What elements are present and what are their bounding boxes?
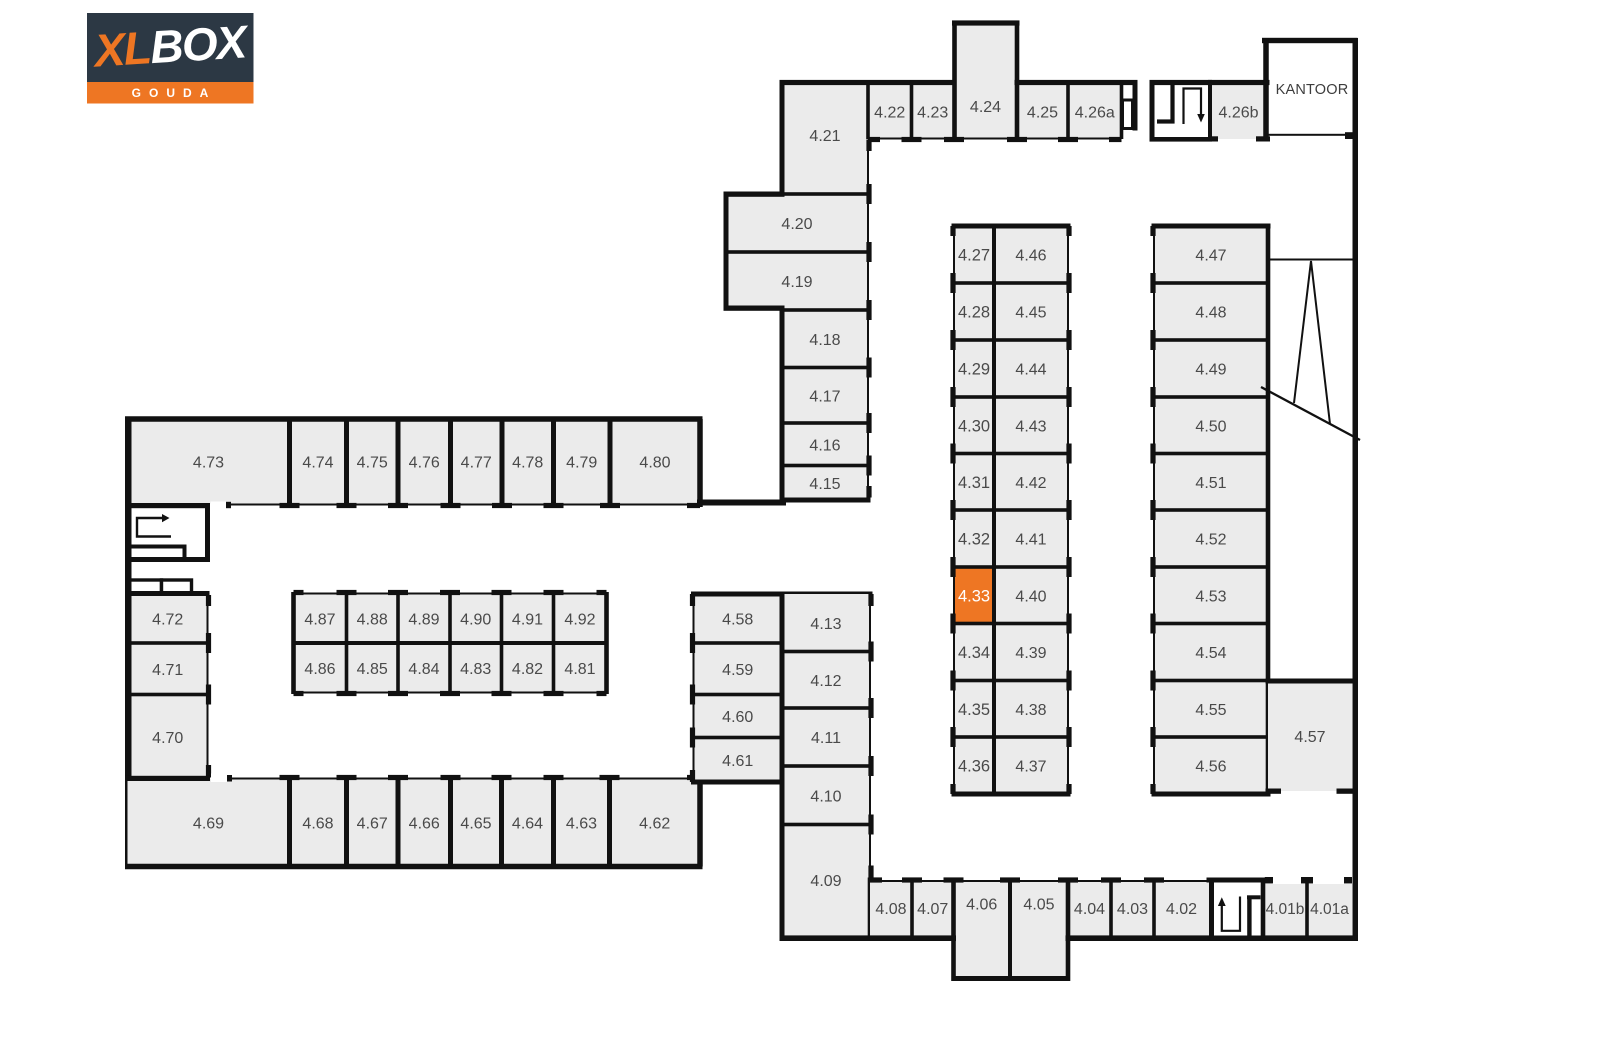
svg-text:4.23: 4.23 — [917, 105, 948, 122]
svg-text:4.24: 4.24 — [970, 99, 1001, 116]
svg-text:4.53: 4.53 — [1195, 588, 1226, 605]
svg-text:4.32: 4.32 — [958, 531, 990, 549]
svg-text:4.20: 4.20 — [781, 216, 812, 233]
svg-text:4.74: 4.74 — [302, 454, 333, 471]
svg-text:4.41: 4.41 — [1015, 532, 1046, 549]
svg-text:4.86: 4.86 — [304, 661, 335, 678]
svg-text:4.25: 4.25 — [1027, 105, 1058, 122]
svg-text:4.59: 4.59 — [722, 662, 753, 679]
svg-text:4.58: 4.58 — [722, 612, 753, 629]
svg-text:4.43: 4.43 — [1015, 418, 1046, 435]
svg-text:4.06: 4.06 — [966, 896, 997, 913]
svg-text:4.05: 4.05 — [1023, 896, 1054, 913]
svg-text:4.54: 4.54 — [1195, 645, 1226, 662]
svg-text:4.77: 4.77 — [461, 454, 492, 471]
svg-text:4.28: 4.28 — [958, 304, 990, 322]
svg-text:4.83: 4.83 — [460, 661, 491, 678]
svg-text:4.39: 4.39 — [1015, 645, 1046, 662]
svg-text:XLBOX: XLBOX — [90, 15, 251, 77]
svg-text:4.76: 4.76 — [409, 454, 440, 471]
svg-text:4.10: 4.10 — [810, 788, 841, 805]
svg-text:4.21: 4.21 — [809, 128, 840, 145]
svg-text:4.82: 4.82 — [512, 661, 543, 678]
svg-text:4.79: 4.79 — [566, 454, 597, 471]
svg-text:4.89: 4.89 — [408, 611, 439, 628]
svg-text:4.02: 4.02 — [1166, 901, 1197, 918]
svg-text:4.17: 4.17 — [809, 388, 840, 405]
svg-text:4.35: 4.35 — [958, 701, 990, 719]
svg-text:4.66: 4.66 — [409, 816, 440, 833]
svg-text:4.67: 4.67 — [357, 816, 388, 833]
svg-text:4.84: 4.84 — [408, 661, 439, 678]
svg-text:4.55: 4.55 — [1195, 702, 1226, 719]
svg-text:4.81: 4.81 — [564, 661, 595, 678]
svg-text:4.71: 4.71 — [152, 662, 183, 679]
svg-text:4.78: 4.78 — [512, 454, 543, 471]
svg-text:4.47: 4.47 — [1195, 248, 1226, 265]
svg-text:4.52: 4.52 — [1195, 532, 1226, 549]
svg-text:KANTOOR: KANTOOR — [1276, 82, 1349, 98]
svg-text:4.37: 4.37 — [1015, 759, 1046, 776]
svg-text:4.51: 4.51 — [1195, 475, 1226, 492]
svg-text:4.34: 4.34 — [958, 644, 990, 662]
svg-text:4.61: 4.61 — [722, 753, 753, 770]
svg-text:4.16: 4.16 — [809, 437, 840, 454]
svg-text:4.75: 4.75 — [357, 454, 388, 471]
svg-text:4.13: 4.13 — [810, 616, 841, 633]
svg-text:4.38: 4.38 — [1015, 702, 1046, 719]
svg-text:4.57: 4.57 — [1294, 729, 1325, 746]
svg-text:4.36: 4.36 — [958, 758, 990, 776]
svg-text:4.44: 4.44 — [1015, 362, 1046, 379]
svg-text:4.18: 4.18 — [809, 332, 840, 349]
svg-text:4.91: 4.91 — [512, 611, 543, 628]
svg-text:4.56: 4.56 — [1195, 759, 1226, 776]
svg-text:4.09: 4.09 — [810, 873, 841, 890]
svg-text:4.68: 4.68 — [302, 816, 333, 833]
svg-text:4.70: 4.70 — [152, 730, 183, 747]
svg-text:4.48: 4.48 — [1195, 305, 1226, 322]
svg-text:4.73: 4.73 — [193, 454, 224, 471]
svg-text:4.69: 4.69 — [193, 816, 224, 833]
svg-text:4.30: 4.30 — [958, 417, 990, 435]
svg-text:4.03: 4.03 — [1117, 901, 1148, 918]
svg-text:4.88: 4.88 — [357, 611, 388, 628]
svg-text:4.90: 4.90 — [460, 611, 491, 628]
svg-text:4.11: 4.11 — [811, 730, 841, 747]
svg-text:4.65: 4.65 — [460, 816, 491, 833]
svg-text:4.12: 4.12 — [810, 673, 841, 690]
svg-text:4.26a: 4.26a — [1075, 105, 1115, 122]
svg-text:4.22: 4.22 — [874, 105, 905, 122]
svg-text:4.29: 4.29 — [958, 361, 990, 379]
svg-text:4.85: 4.85 — [357, 661, 388, 678]
svg-text:4.50: 4.50 — [1195, 418, 1226, 435]
svg-text:4.31: 4.31 — [958, 474, 990, 492]
svg-text:4.08: 4.08 — [875, 901, 906, 918]
svg-text:4.01b: 4.01b — [1266, 901, 1305, 918]
svg-text:4.63: 4.63 — [566, 816, 597, 833]
svg-text:4.19: 4.19 — [781, 274, 812, 291]
svg-text:4.01a: 4.01a — [1310, 901, 1349, 918]
svg-text:4.92: 4.92 — [564, 611, 595, 628]
svg-text:4.07: 4.07 — [917, 901, 948, 918]
svg-text:4.46: 4.46 — [1015, 248, 1046, 265]
svg-text:4.04: 4.04 — [1074, 901, 1105, 918]
svg-text:4.33: 4.33 — [958, 587, 990, 605]
svg-text:4.60: 4.60 — [722, 709, 753, 726]
svg-text:4.26b: 4.26b — [1218, 105, 1258, 122]
svg-text:4.27: 4.27 — [958, 247, 990, 265]
svg-text:4.64: 4.64 — [512, 816, 543, 833]
svg-text:4.62: 4.62 — [639, 816, 670, 833]
svg-text:4.80: 4.80 — [639, 454, 670, 471]
svg-text:4.40: 4.40 — [1015, 588, 1046, 605]
svg-text:4.87: 4.87 — [304, 611, 335, 628]
svg-text:4.49: 4.49 — [1195, 362, 1226, 379]
svg-text:4.45: 4.45 — [1015, 305, 1046, 322]
svg-text:4.42: 4.42 — [1015, 475, 1046, 492]
svg-text:4.15: 4.15 — [809, 476, 840, 493]
svg-text:GOUDA: GOUDA — [132, 86, 217, 100]
svg-text:4.72: 4.72 — [152, 611, 183, 628]
